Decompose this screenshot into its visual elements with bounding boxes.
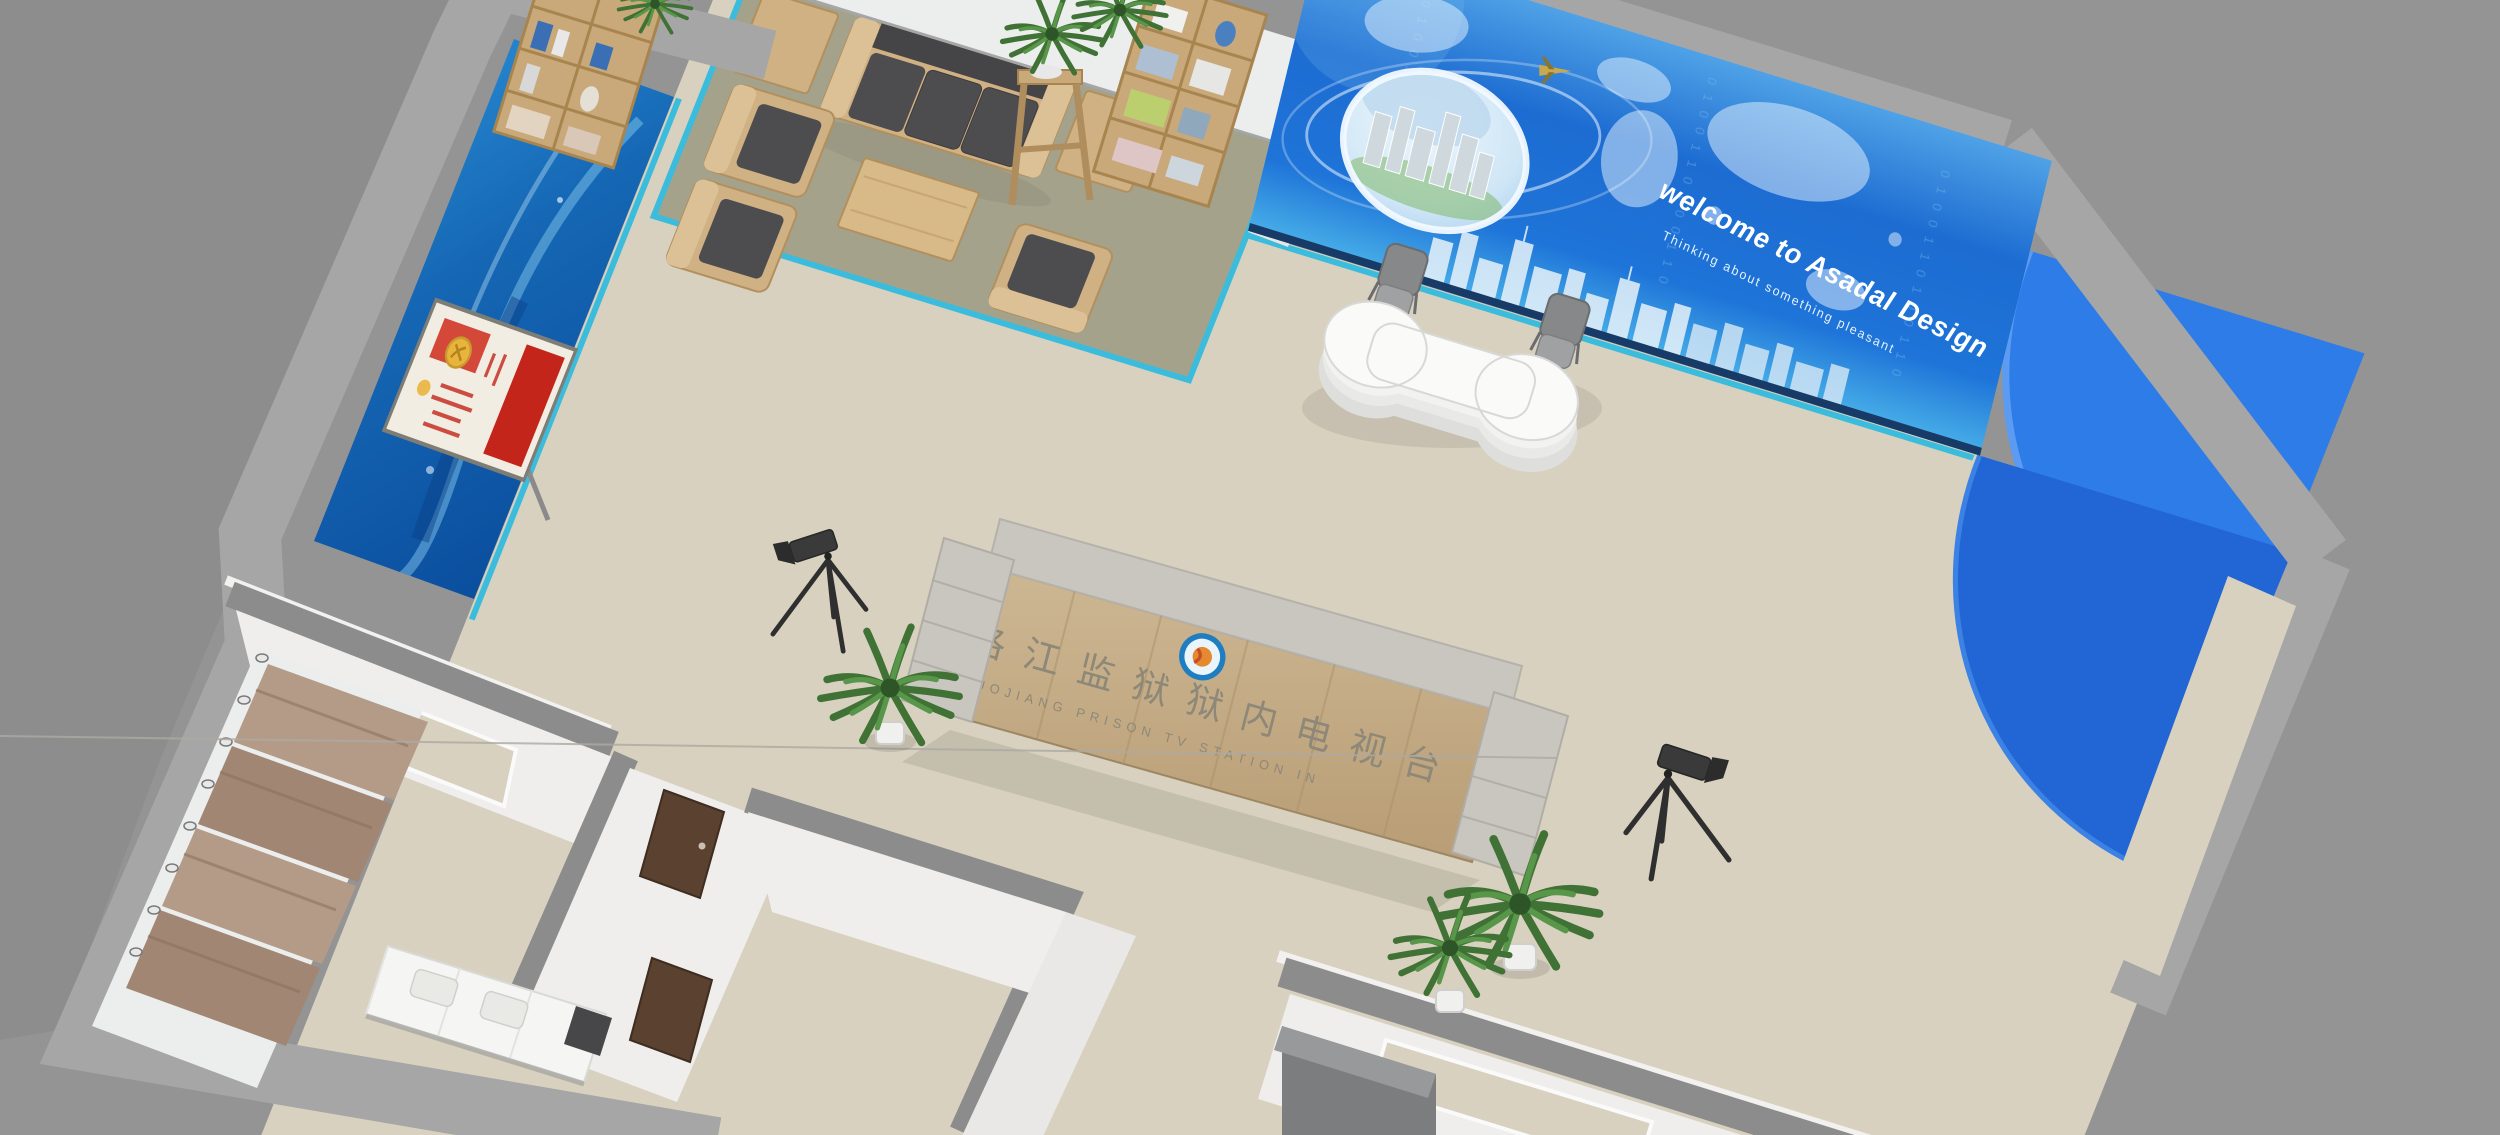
plant-pot bbox=[1436, 990, 1464, 1012]
floorplan-render: 0 1 0 0 1 1 0 1 0 0 1 1 0 0 1 0 0 1 1 0 … bbox=[0, 0, 2500, 1135]
door-handle-icon bbox=[699, 843, 706, 850]
